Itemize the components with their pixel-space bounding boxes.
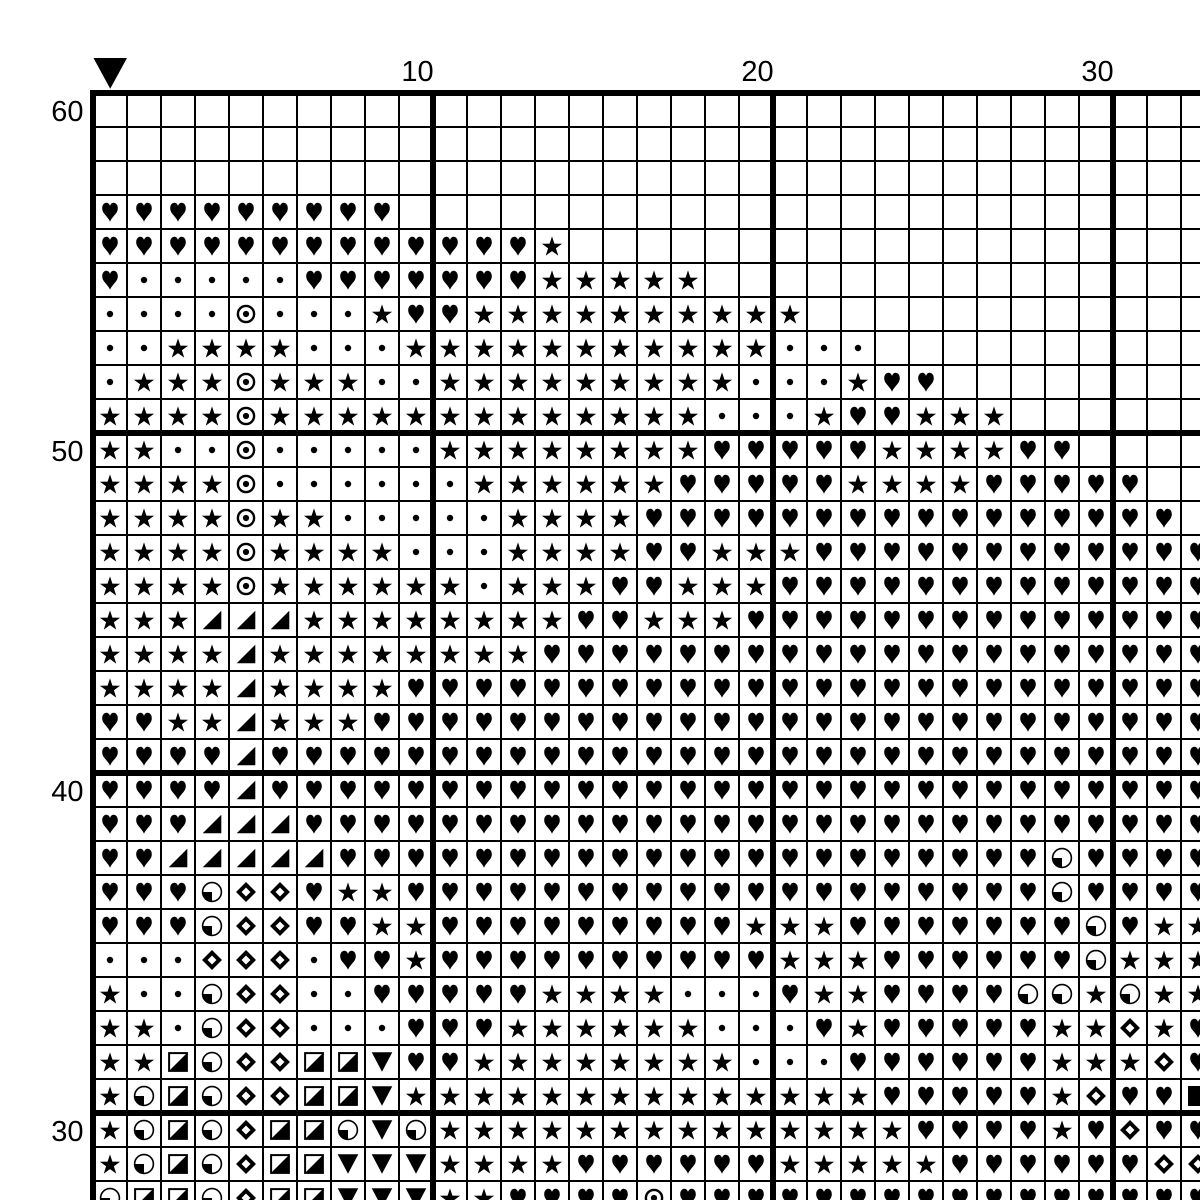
svg-text:50: 50 (51, 436, 83, 468)
svg-text:10: 10 (401, 56, 433, 88)
svg-text:60: 60 (51, 96, 83, 128)
svg-text:40: 40 (51, 776, 83, 808)
svg-text:30: 30 (51, 1116, 83, 1148)
svg-text:30: 30 (1081, 56, 1113, 88)
svg-text:20: 20 (741, 56, 773, 88)
